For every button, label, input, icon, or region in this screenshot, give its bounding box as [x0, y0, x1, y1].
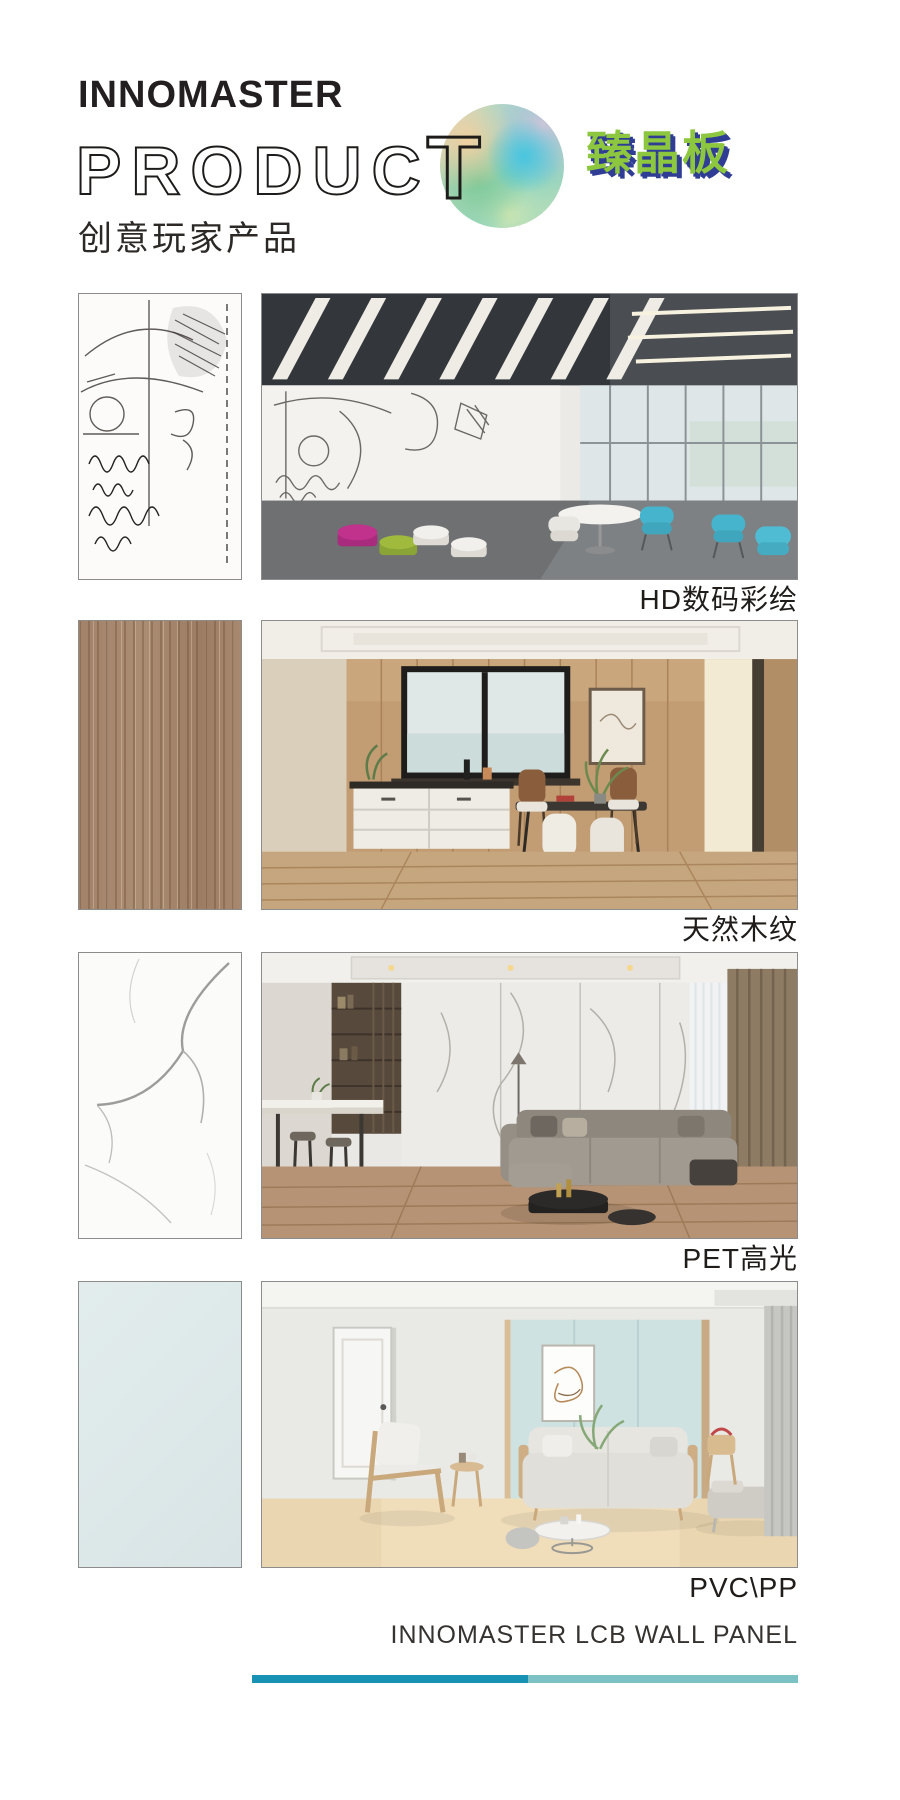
pouf [506, 1527, 540, 1549]
pvc-living-scene [262, 1282, 797, 1567]
section-wood: 天然木纹 [78, 620, 798, 910]
catalog-page: INNOMASTER PRODUC T 臻晶板 创意玩家产品 [0, 0, 900, 1800]
section-pvc-pp: PVC\PP [78, 1281, 798, 1568]
caption-wood: 天然木纹 [682, 915, 798, 946]
brand-title: INNOMASTER [78, 76, 343, 114]
caption-pet-gloss: PET高光 [683, 1244, 798, 1275]
section-hd-print: HD数码彩绘 [78, 293, 798, 580]
swatch-marble [78, 952, 242, 1239]
subtitle-chinese: 创意玩家产品 [78, 222, 300, 256]
brand-logo-chinese: 臻晶板 [586, 128, 730, 179]
marble-living-scene [262, 953, 797, 1238]
windows [580, 385, 797, 500]
swatch-plain-pvc [78, 1281, 242, 1568]
product-headline: PRODUC T [76, 124, 480, 205]
footer-accent-line [252, 1675, 798, 1683]
ceiling [262, 621, 797, 659]
product-outline-text: PRODUC [76, 137, 431, 205]
caption-hd-print: HD数码彩绘 [640, 585, 798, 616]
left-wall [262, 659, 347, 852]
footer-title: INNOMASTER LCB WALL PANEL [391, 1622, 799, 1650]
floor [262, 852, 797, 909]
printed-wall [262, 385, 560, 506]
product-letter-t: T [427, 124, 481, 212]
ceiling [262, 1282, 797, 1308]
swatch-wood-grain [78, 620, 242, 910]
footer-line-right-segment [528, 1675, 798, 1683]
photo-living-blue-panel [261, 1281, 798, 1568]
wall-art [542, 1346, 594, 1421]
office-scene [262, 294, 797, 579]
footer-line-left-segment [252, 1675, 528, 1683]
photo-dining-wood-wall [261, 620, 798, 910]
dining-scene [262, 621, 797, 909]
ceiling [262, 294, 797, 385]
section-pet-gloss: PET高光 [78, 952, 798, 1239]
right-wall [705, 659, 797, 852]
swatch-hd-sketch-art [79, 294, 241, 579]
ceiling [262, 953, 797, 983]
sofa [501, 1110, 738, 1187]
wall-picture [590, 689, 644, 763]
curtain [764, 1306, 797, 1536]
marble-art [79, 953, 241, 1238]
photo-office-hd-print [261, 293, 798, 580]
sofa [501, 1427, 720, 1532]
caption-pvc-pp: PVC\PP [689, 1573, 798, 1604]
photo-living-marble-wall [261, 952, 798, 1239]
swatch-hd-sketch [78, 293, 242, 580]
